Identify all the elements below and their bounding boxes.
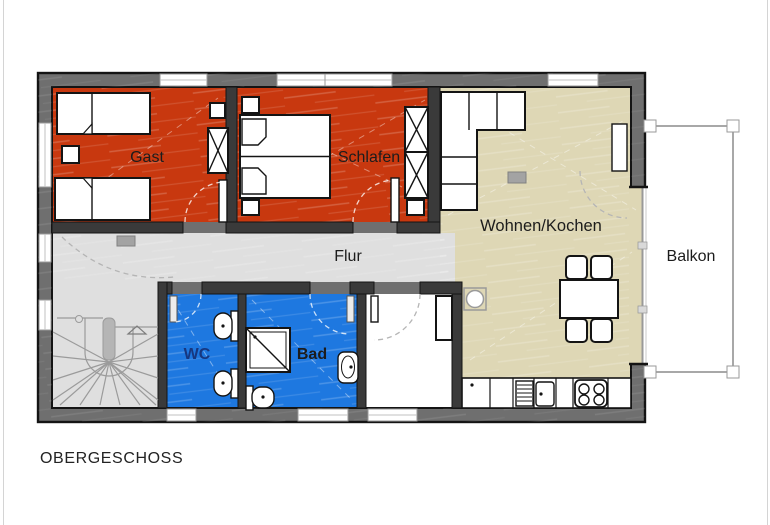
chair-icon (566, 319, 587, 342)
toilet-icon (214, 369, 238, 398)
single-bed-icon (57, 93, 150, 134)
room-label-bad: Bad (297, 346, 327, 363)
window (39, 123, 51, 187)
single-bed-icon (55, 178, 150, 220)
balcony-post (727, 120, 739, 132)
door-leaf (371, 296, 378, 322)
chair-icon (591, 319, 612, 342)
chair-icon (591, 256, 612, 279)
double-bed-icon (240, 115, 330, 198)
window (277, 74, 392, 86)
glass-front (629, 186, 648, 365)
balcony-post (727, 366, 739, 378)
radiator-icon (117, 236, 135, 246)
door-leaf (219, 180, 227, 222)
floor-plan-drawing: Gast Schlafen Wohnen/Kochen Flur WC Bad … (0, 0, 770, 525)
kitchen-sink-icon (536, 382, 554, 406)
wash-basin-icon (464, 288, 486, 310)
window (39, 300, 51, 330)
nightstand-icon (62, 146, 79, 163)
window (298, 409, 348, 421)
window (548, 74, 598, 86)
shower-icon (246, 328, 290, 372)
wardrobe-icon (208, 128, 228, 173)
floor-plan-page: Gast Schlafen Wohnen/Kochen Flur WC Bad … (0, 0, 770, 525)
room-label-gast: Gast (130, 149, 164, 166)
door-leaf (391, 178, 399, 222)
balcony-post (644, 120, 656, 132)
radiator-icon (508, 172, 526, 183)
nightstand-icon (242, 97, 259, 113)
balcony-post (644, 366, 656, 378)
room-label-schlafen: Schlafen (338, 149, 400, 166)
room-label-wohnen-kochen: Wohnen/Kochen (480, 217, 602, 235)
room-label-balkon: Balkon (667, 248, 716, 265)
room-label-wc: WC (184, 346, 211, 363)
nightstand-icon (407, 200, 424, 215)
window (167, 409, 196, 421)
wardrobe-icon (405, 152, 428, 198)
room-label-flur: Flur (334, 248, 362, 265)
toilet-icon (214, 311, 238, 341)
floor-title: OBERGESCHOSS (40, 450, 183, 467)
window (39, 234, 51, 262)
door-leaf (170, 296, 177, 322)
balcony-door-leaf (612, 124, 627, 171)
nightstand-icon (210, 103, 225, 118)
door-leaf (347, 296, 354, 322)
dishwasher-icon (516, 381, 533, 406)
nightstand-icon (242, 200, 259, 215)
chair-icon (566, 256, 587, 279)
window (160, 74, 207, 86)
wardrobe-icon (405, 107, 428, 152)
wardrobe-icon (436, 296, 452, 340)
stove-icon (575, 380, 607, 407)
toilet-icon (246, 386, 274, 410)
window (368, 409, 417, 421)
bathroom-sink-icon (338, 352, 358, 383)
kitchen-counter (462, 378, 631, 408)
cabinet-knob (470, 383, 473, 386)
